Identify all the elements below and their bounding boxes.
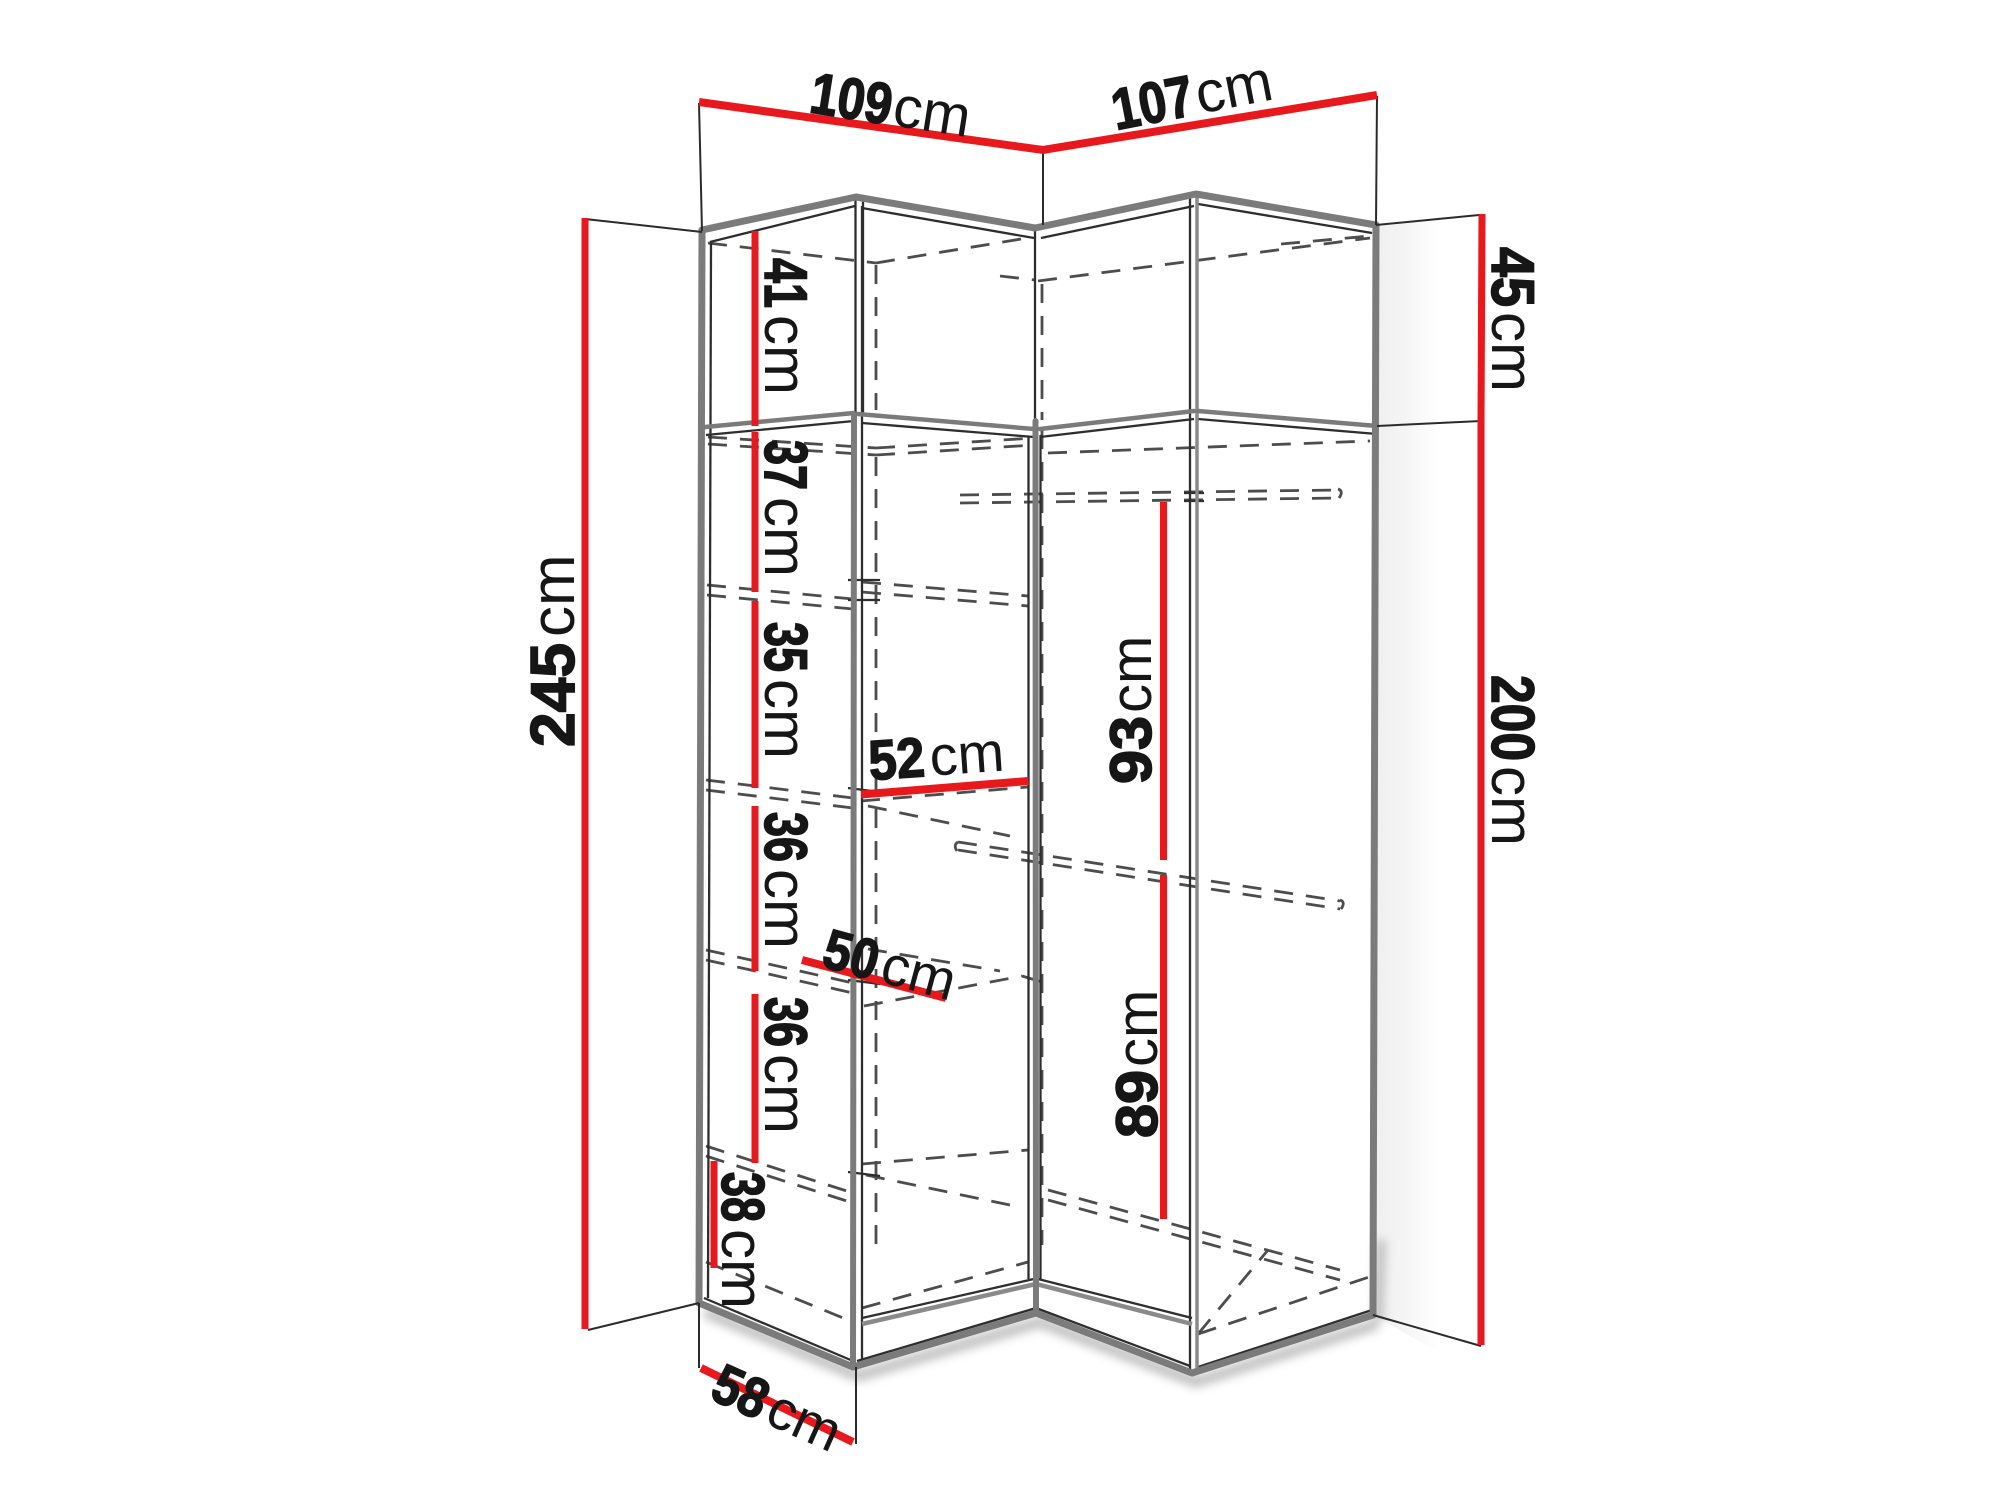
svg-text:200cm: 200cm	[1479, 675, 1546, 846]
svg-text:45cm: 45cm	[1479, 247, 1546, 392]
svg-text:93cm: 93cm	[1099, 636, 1164, 784]
svg-text:41cm: 41cm	[752, 258, 819, 395]
svg-text:52cm: 52cm	[866, 720, 1006, 792]
svg-text:245cm: 245cm	[519, 554, 588, 747]
svg-text:35cm: 35cm	[752, 622, 819, 759]
svg-text:89cm: 89cm	[1105, 990, 1170, 1138]
svg-text:36cm: 36cm	[752, 997, 819, 1134]
svg-text:38cm: 38cm	[709, 1172, 776, 1309]
svg-text:37cm: 37cm	[752, 440, 819, 577]
svg-text:36cm: 36cm	[752, 812, 819, 949]
